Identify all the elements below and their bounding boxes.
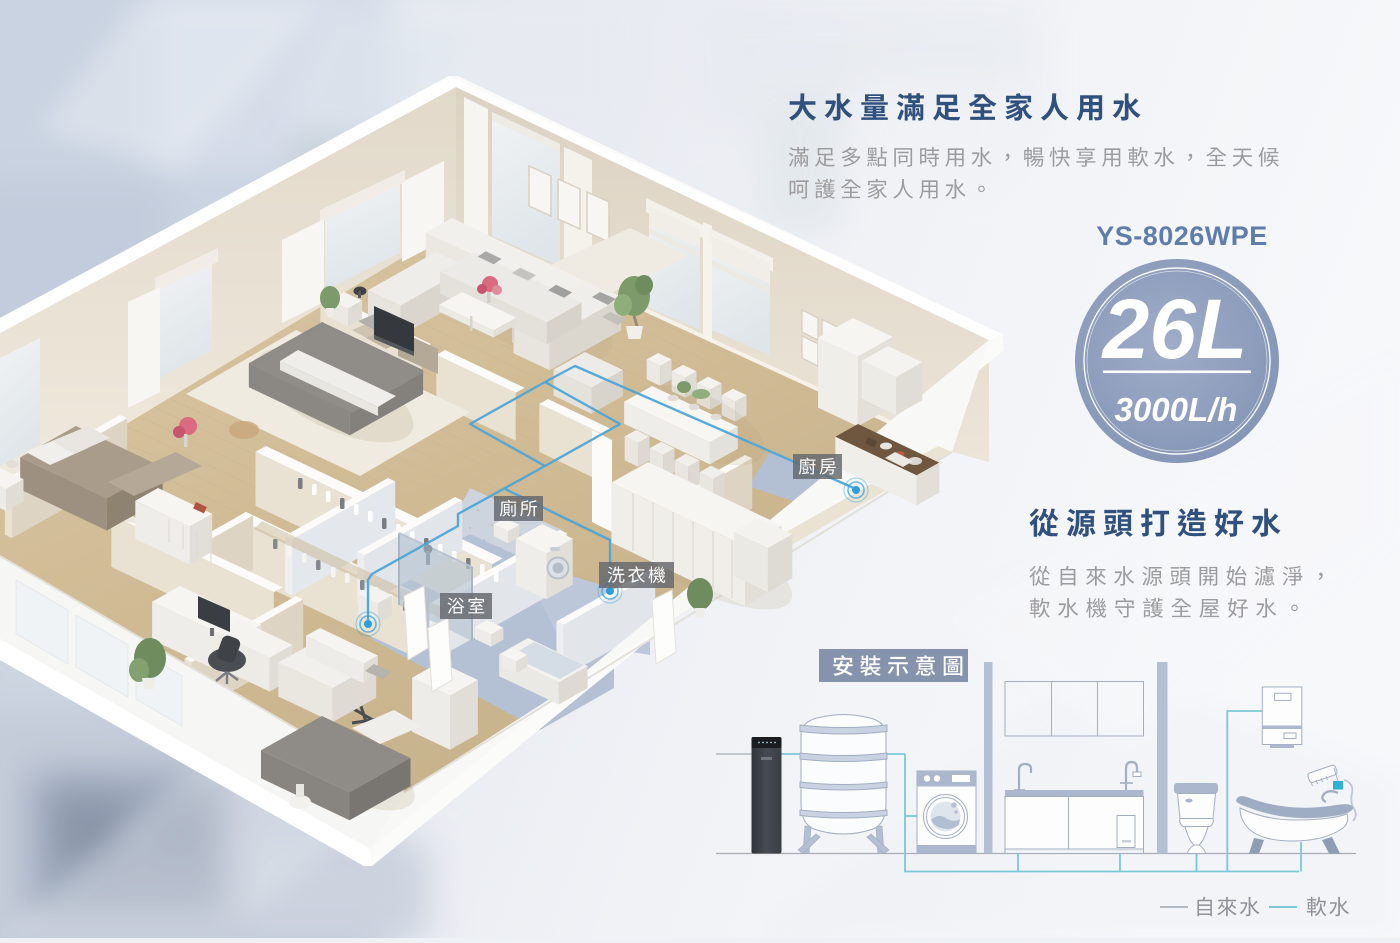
svg-text:26L: 26L — [1101, 282, 1248, 376]
svg-text:3000L/h: 3000L/h — [1115, 391, 1238, 428]
svg-text:YS-8026WPE: YS-8026WPE — [1096, 221, 1268, 251]
